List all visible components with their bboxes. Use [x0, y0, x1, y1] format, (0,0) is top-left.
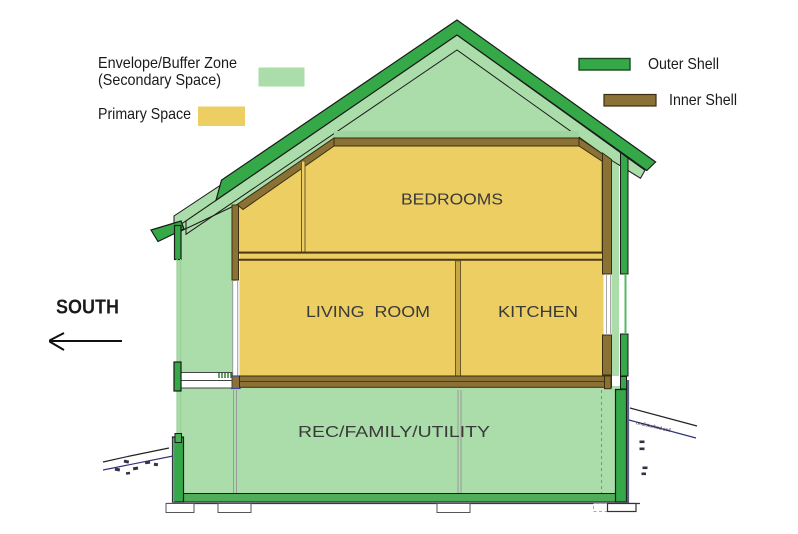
- svg-text:SOUTH: SOUTH: [56, 297, 119, 319]
- svg-text:Primary Space: Primary Space: [98, 106, 191, 123]
- svg-text:(Secondary Space): (Secondary Space): [98, 72, 221, 89]
- svg-text:KITCHEN: KITCHEN: [498, 304, 578, 321]
- svg-text:undisturbed soil: undisturbed soil: [636, 420, 671, 434]
- svg-text:Envelope/Buffer Zone: Envelope/Buffer Zone: [98, 55, 237, 72]
- svg-text:BEDROOMS: BEDROOMS: [401, 192, 503, 209]
- svg-text:REC/FAMILY/UTILITY: REC/FAMILY/UTILITY: [298, 424, 490, 441]
- svg-text:LIVING ROOM: LIVING ROOM: [306, 304, 430, 321]
- svg-text:Outer Shell: Outer Shell: [648, 56, 719, 73]
- svg-text:Inner Shell: Inner Shell: [669, 92, 737, 109]
